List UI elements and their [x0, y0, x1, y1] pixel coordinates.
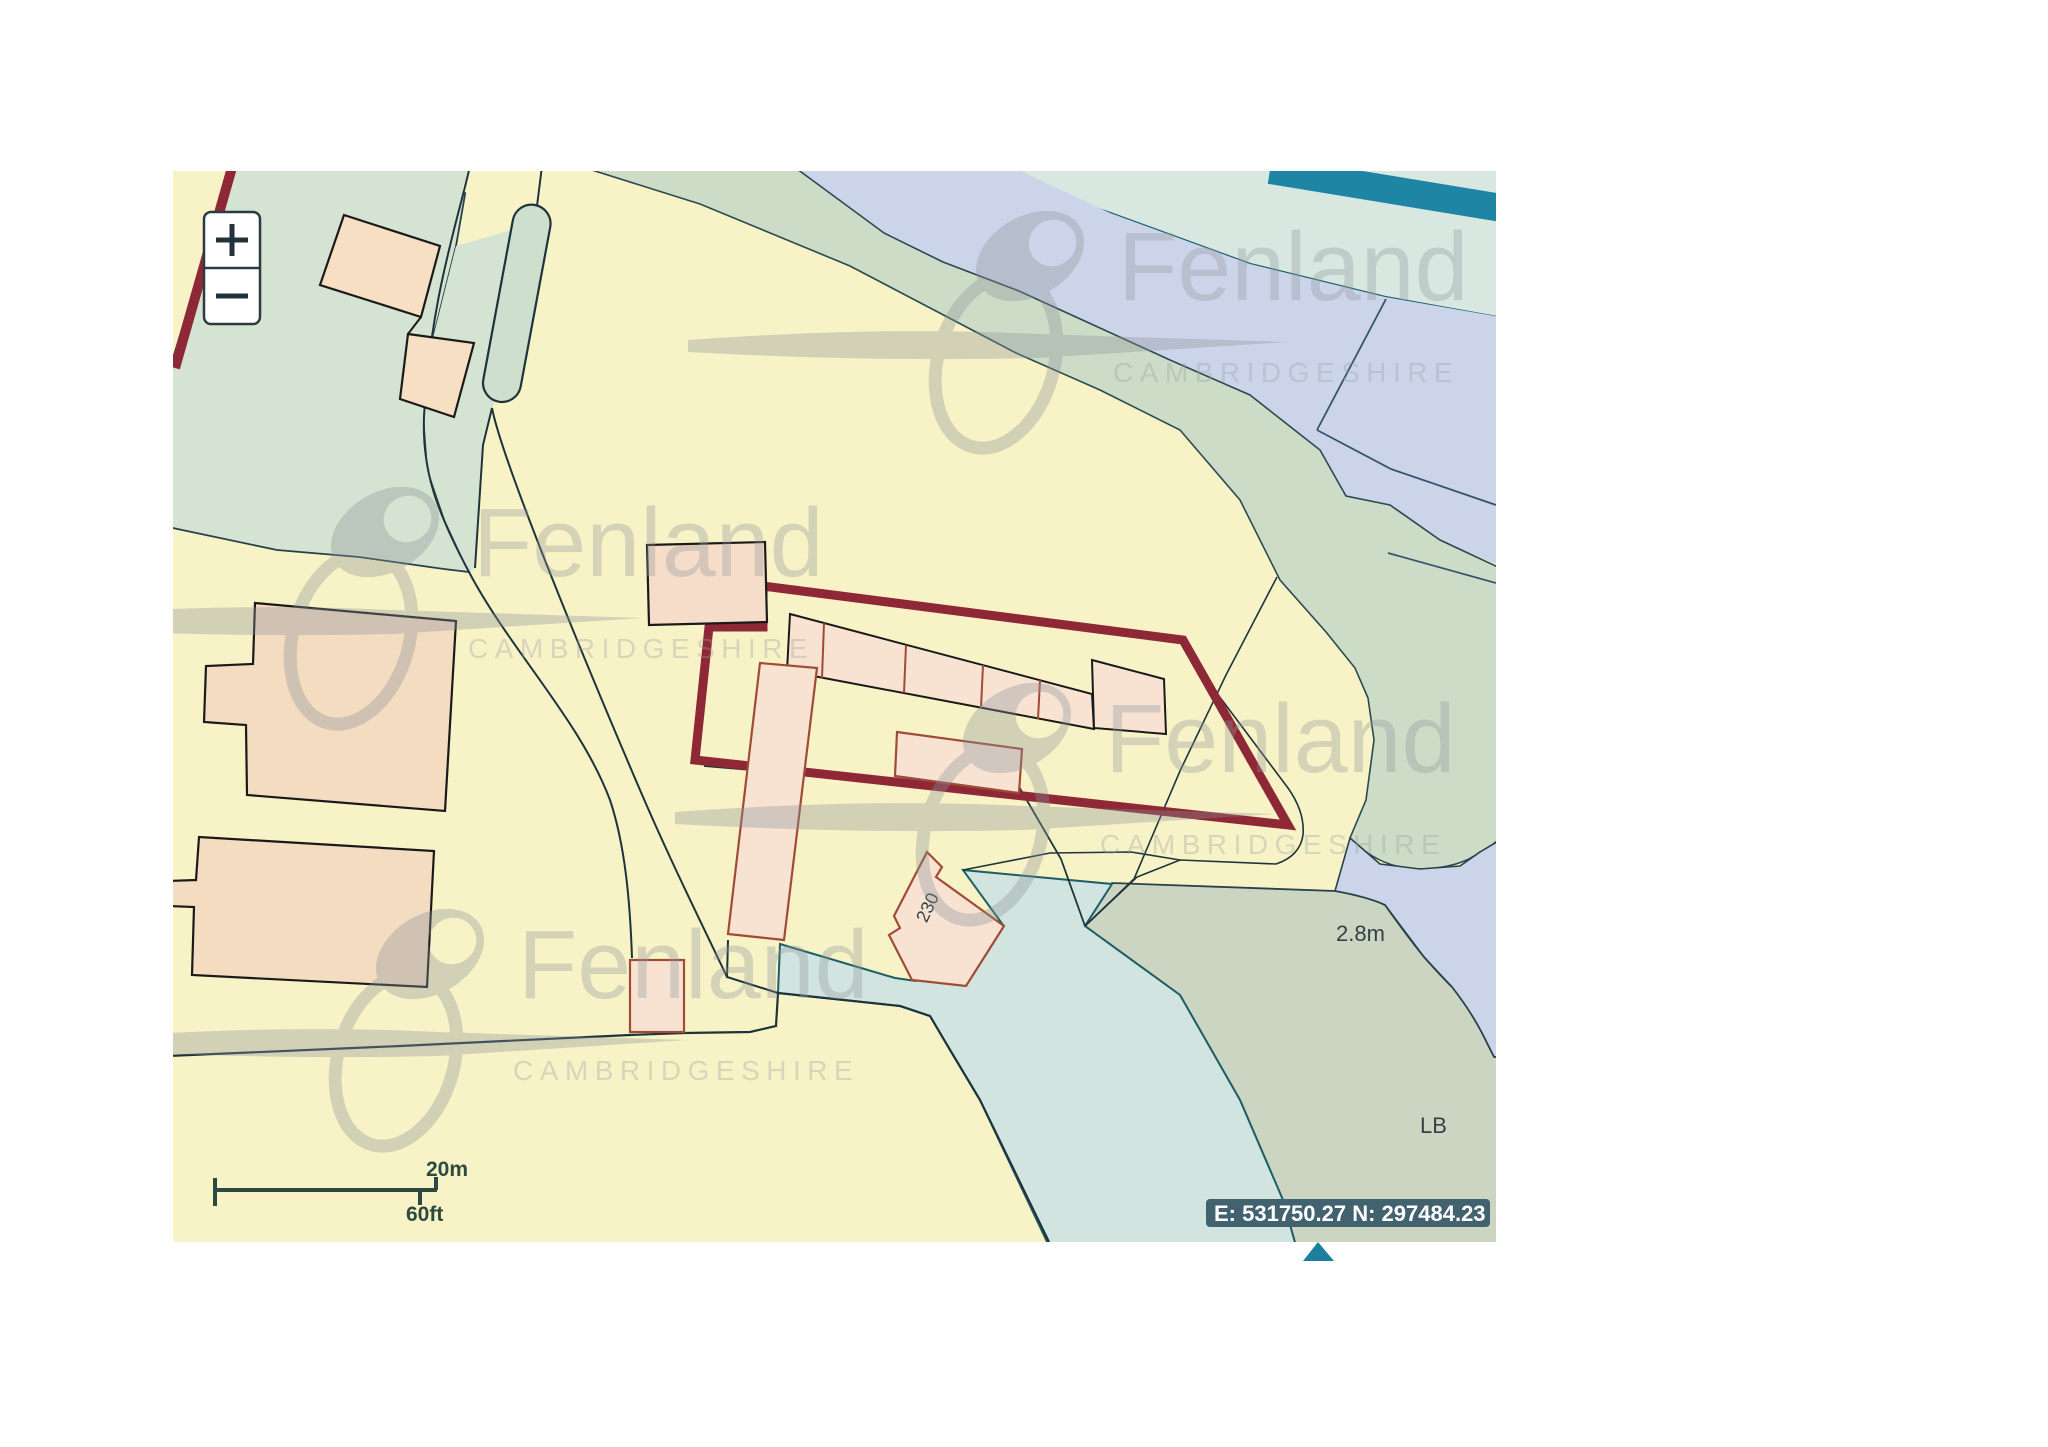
svg-text:E: 531750.27 N: 297484.23: E: 531750.27 N: 297484.23 — [1214, 1201, 1486, 1226]
svg-text:60ft: 60ft — [406, 1203, 443, 1226]
svg-text:LB: LB — [1420, 1113, 1447, 1138]
svg-text:20m: 20m — [426, 1158, 468, 1181]
svg-text:2.8m: 2.8m — [1336, 921, 1385, 946]
